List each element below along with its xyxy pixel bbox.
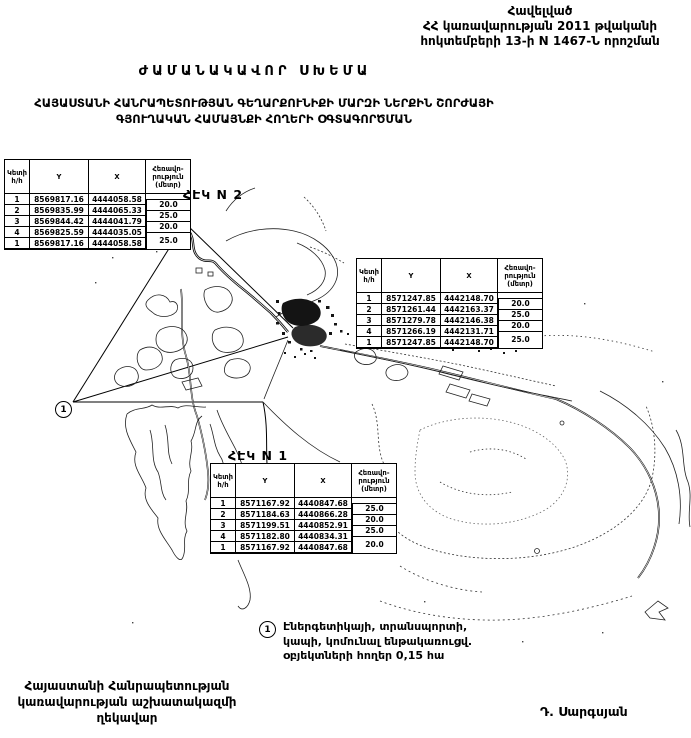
col-header-point: Կետի հ/հ [357,259,382,293]
scanned-scheme-page: Հավելված ՀՀ կառավարության 2011 թվականի հ… [0,0,691,738]
col-header-distance: Հեռավո-րություն (մետր) [498,259,542,293]
distance-cell: 25.0 [146,232,190,249]
legend-symbol-marker: 1 [259,621,276,638]
page-title: ԺԱՄԱՆԱԿԱՎՈՐ ՍԽԵՄԱ [90,64,420,79]
col-header-point: Կետի հ/հ [5,160,30,194]
distance-cell: 25.0 [498,331,542,348]
col-header-y: Y [236,464,295,498]
col-header-x: X [441,259,498,293]
appendix-note: Հավելված ՀՀ կառավարության 2011 թվականի հ… [392,4,688,49]
col-header-x: X [295,464,352,498]
map-point-1-marker: 1 [55,401,72,418]
map-point-1-label: 1 [60,405,66,415]
col-header-y: Y [30,160,89,194]
col-header-point: Կետի հ/հ [211,464,236,498]
label-hek-n2: ՀԷԿ N 2 [183,187,243,202]
coords-table-hek2: Կետի հ/հ Y X Հեռավո-րություն (մետր) 1 85… [4,159,191,250]
distance-cell: 20.0 [352,536,396,553]
legend-text: Էներգետիկայի, տրանսպորտի, կապի, կոմունալ… [283,620,473,664]
terrain-outlines [115,188,691,620]
coords-table-middle: Կետի հ/հ Y X Հեռավո-րություն (մետր) 1 85… [356,258,543,349]
label-hek-n1: ՀԷԿ N 1 [228,448,288,463]
page-subtitle: ՀԱՅԱՍՏԱՆԻ ՀԱՆՐԱՊԵՏՈՒԹՅԱՆ ԳԵՂԱՐՔՈՒՆԻՔԻ ՄԱ… [0,96,528,127]
footer-office-title: Հայաստանի Հանրապետության կառավարության ա… [8,678,246,726]
coords-table-hek1: Կետի հ/հ Y X Հեռավո-րություն (մետր) 1 85… [210,463,397,554]
col-header-y: Y [382,259,441,293]
river-line [189,231,288,332]
legend-symbol-label: 1 [264,625,270,635]
signature-name: Դ. Սարգսյան [540,704,628,719]
col-header-distance: Հեռավո-րություն (մետր) [352,464,396,498]
col-header-x: X [89,160,146,194]
